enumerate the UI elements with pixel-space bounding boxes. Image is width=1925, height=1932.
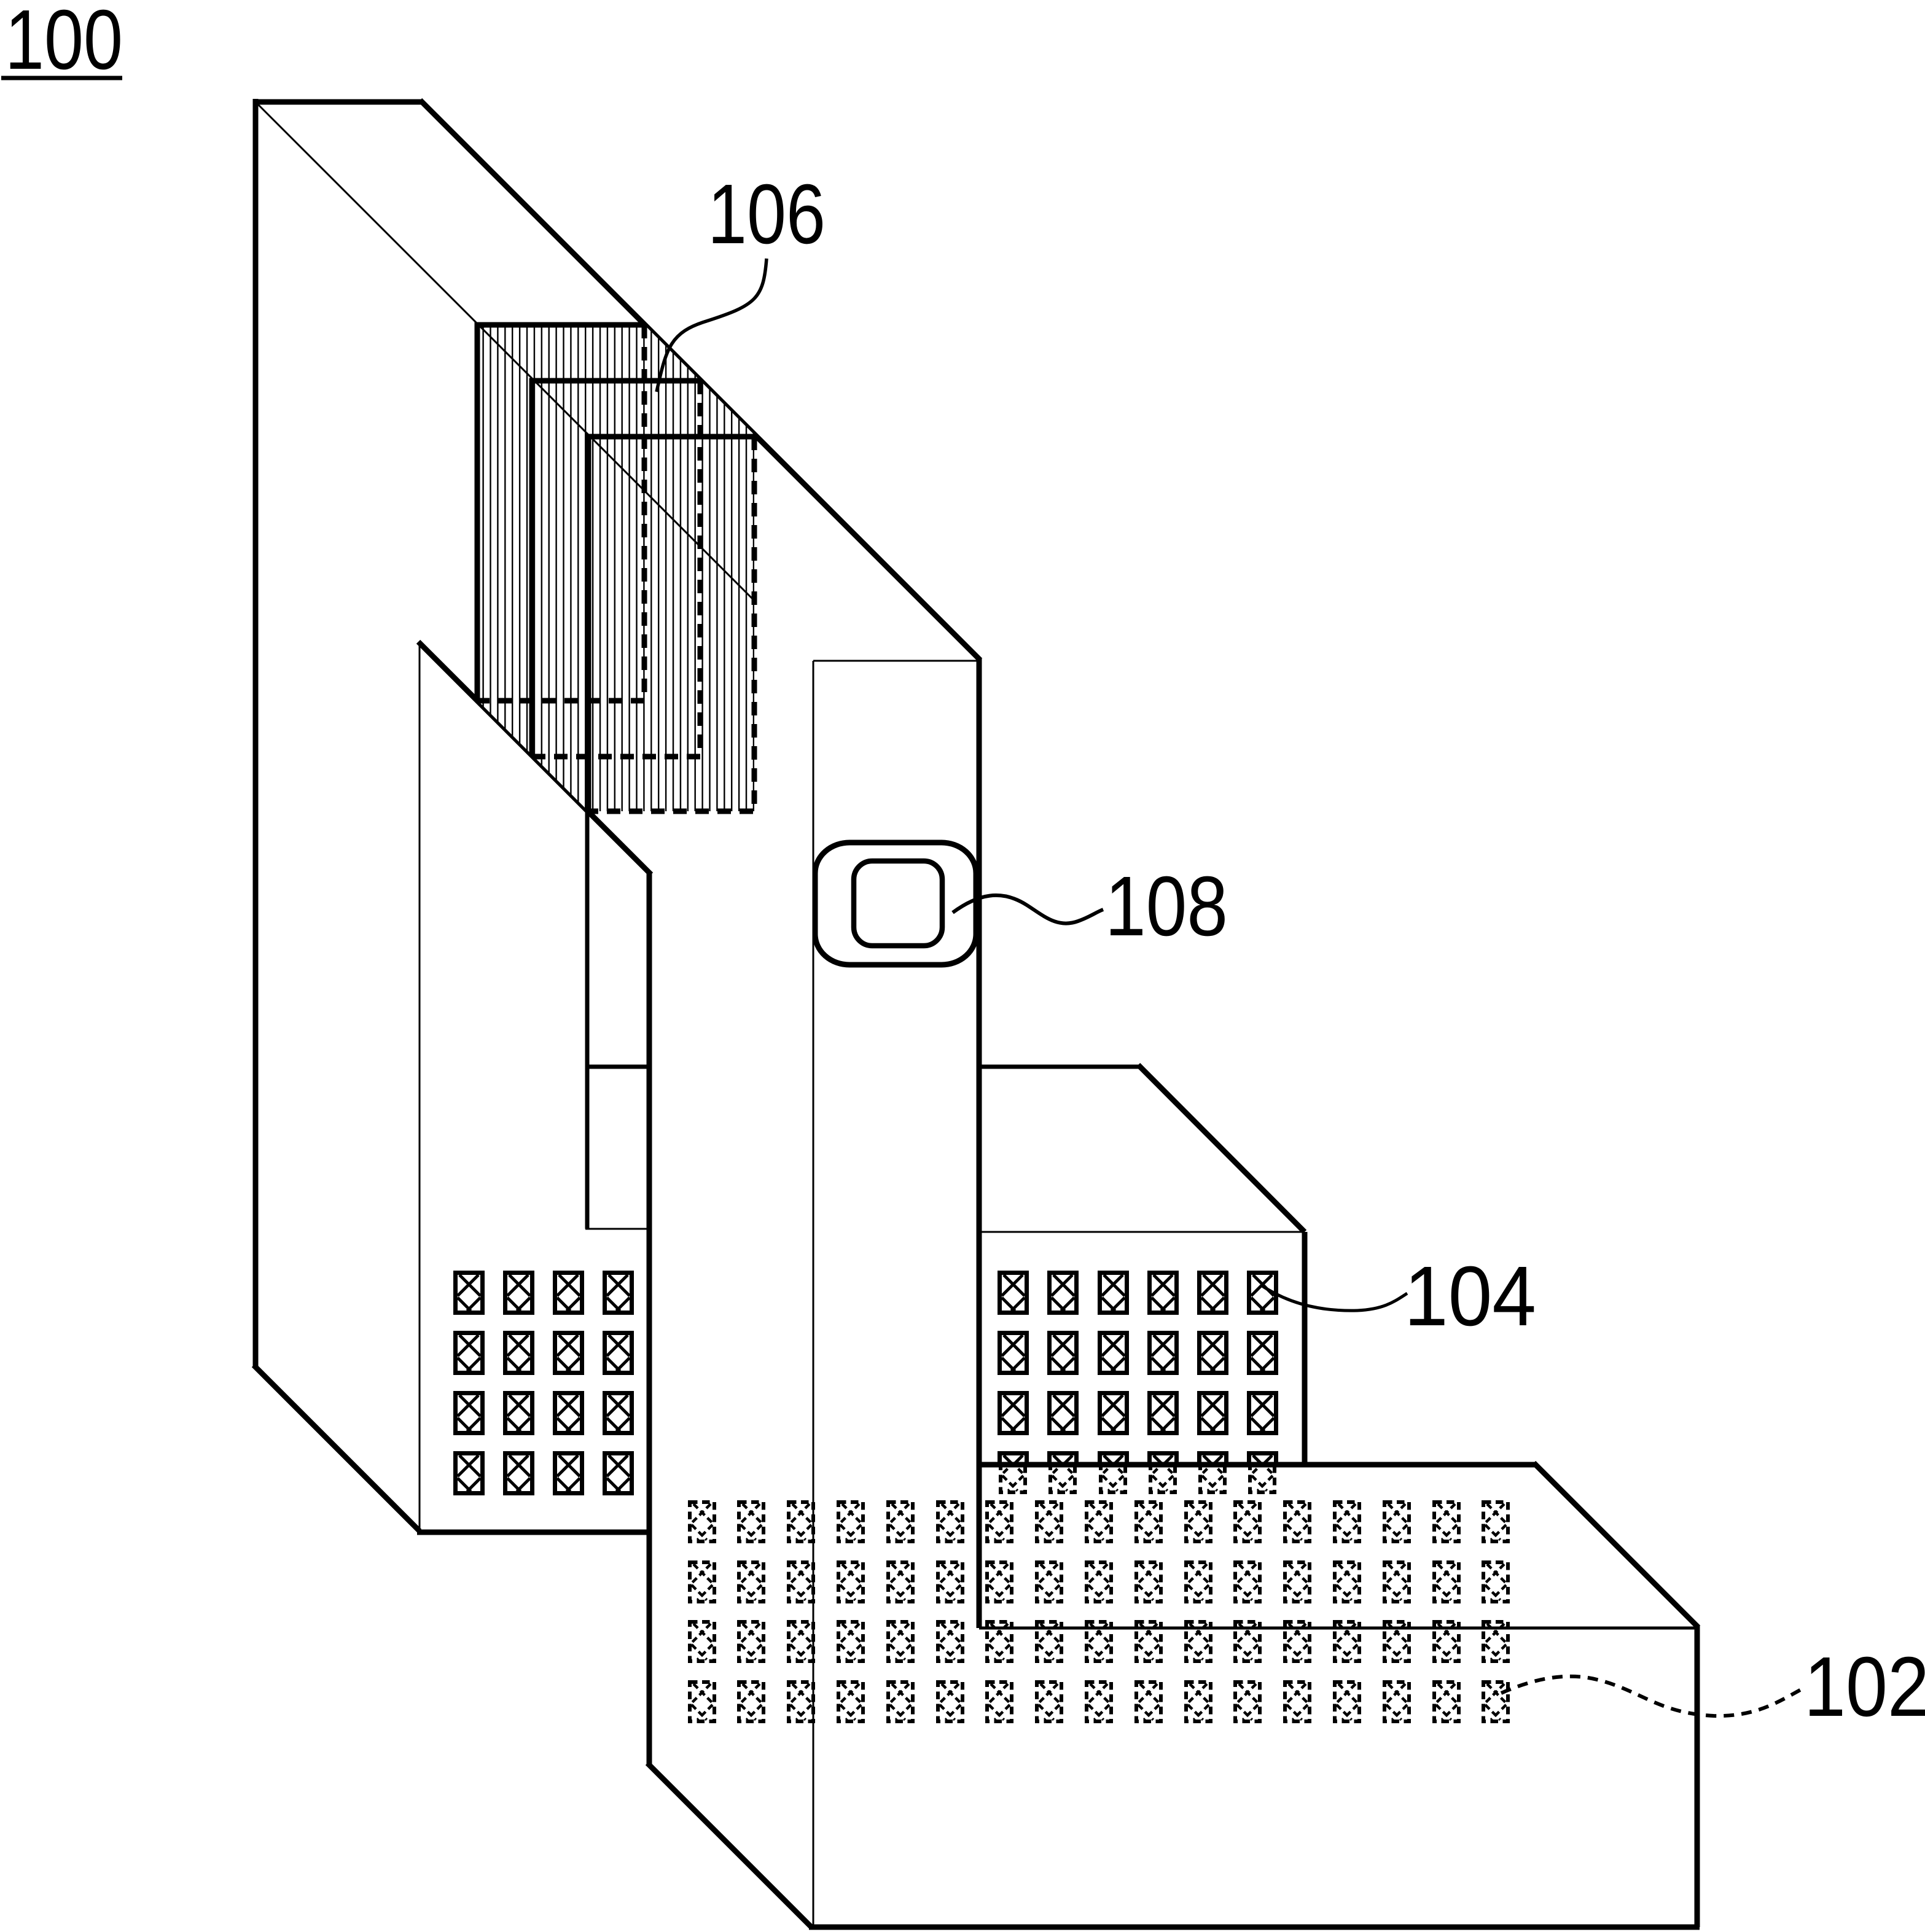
svg-text:100: 100 [5, 0, 123, 87]
svg-text:104: 104 [1404, 1249, 1536, 1344]
svg-text:108: 108 [1105, 859, 1228, 954]
svg-text:106: 106 [708, 167, 826, 262]
svg-text:102: 102 [1804, 1640, 1925, 1734]
